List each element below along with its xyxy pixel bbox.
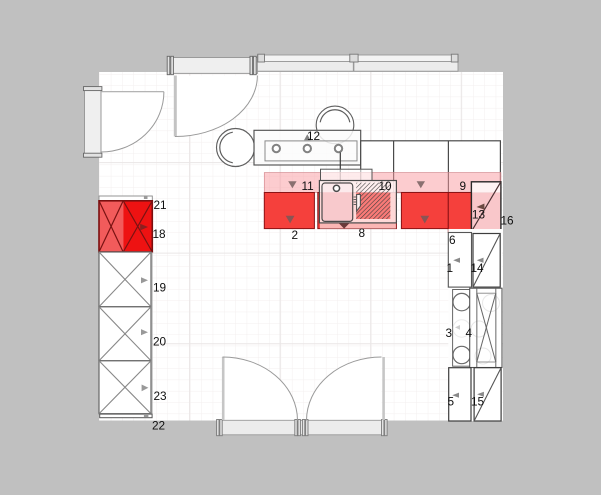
- svg-text:2: 2: [292, 228, 299, 242]
- svg-text:14: 14: [471, 261, 485, 275]
- svg-text:20: 20: [153, 335, 167, 349]
- svg-text:19: 19: [153, 281, 166, 295]
- svg-text:21: 21: [154, 198, 167, 212]
- svg-text:8: 8: [359, 226, 366, 240]
- svg-text:13: 13: [472, 208, 486, 222]
- svg-text:12: 12: [307, 129, 320, 143]
- svg-text:3: 3: [446, 326, 453, 340]
- svg-text:1: 1: [447, 261, 454, 275]
- svg-text:5: 5: [448, 395, 455, 409]
- svg-text:9: 9: [460, 179, 467, 193]
- svg-text:11: 11: [302, 179, 314, 193]
- svg-text:4: 4: [466, 326, 473, 340]
- svg-text:18: 18: [153, 227, 167, 241]
- svg-text:10: 10: [379, 179, 393, 193]
- svg-text:6: 6: [449, 233, 456, 247]
- svg-text:23: 23: [154, 389, 168, 403]
- svg-text:15: 15: [471, 395, 485, 409]
- svg-text:22: 22: [152, 419, 165, 433]
- svg-text:16: 16: [501, 214, 515, 228]
